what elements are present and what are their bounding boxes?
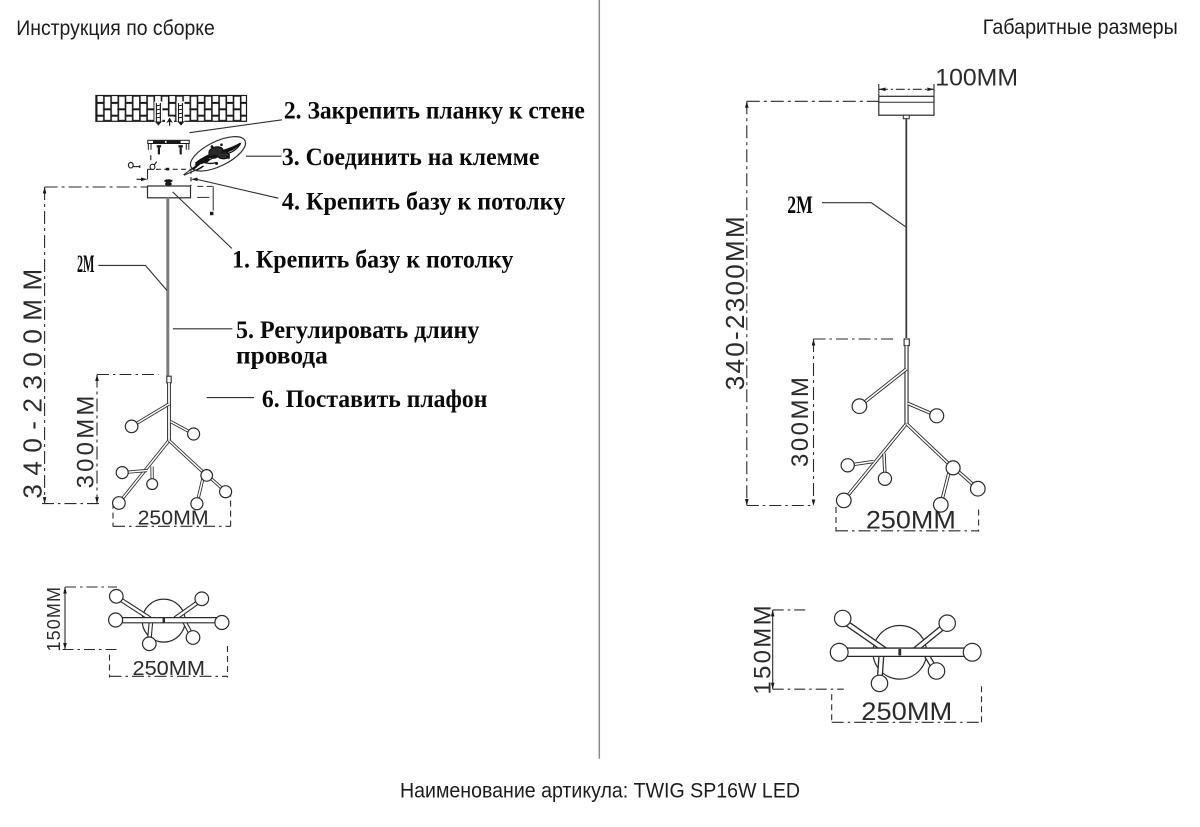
svg-text:150MM: 150MM: [44, 586, 64, 652]
svg-text:340-2300MM: 340-2300MM: [17, 260, 47, 498]
svg-text:5. Регулировать длину: 5. Регулировать длину: [236, 317, 480, 344]
svg-text:300MM: 300MM: [787, 375, 814, 467]
svg-text:1. Крепить базу к потолку: 1. Крепить базу к потолку: [232, 247, 514, 274]
svg-text:100MM: 100MM: [935, 64, 1018, 91]
svg-text:250MM: 250MM: [861, 698, 952, 726]
svg-text:Габаритные размеры: Габаритные размеры: [983, 16, 1178, 39]
svg-text:150MM: 150MM: [749, 603, 776, 695]
svg-text:Наименование артикула: TWIG SP: Наименование артикула: TWIG SP16W LED: [400, 780, 800, 803]
svg-text:300MM: 300MM: [73, 392, 100, 488]
svg-text:4. Крепить базу к потолку: 4. Крепить базу к потолку: [282, 188, 566, 215]
svg-text:2. Закрепить планку к стене: 2. Закрепить планку к стене: [284, 98, 585, 125]
svg-text:3. Соединить на клемме: 3. Соединить на клемме: [282, 144, 540, 171]
svg-text:2M: 2M: [77, 251, 95, 278]
svg-text:340-2300MM: 340-2300MM: [720, 214, 750, 390]
svg-text:2M: 2M: [787, 192, 813, 219]
svg-text:250MM: 250MM: [133, 658, 206, 680]
svg-text:Инструкция по сборке: Инструкция по сборке: [16, 17, 215, 40]
svg-text:провода: провода: [236, 343, 328, 370]
svg-text:6. Поставить плафон: 6. Поставить плафон: [262, 386, 488, 413]
svg-text:250MM: 250MM: [138, 507, 209, 529]
